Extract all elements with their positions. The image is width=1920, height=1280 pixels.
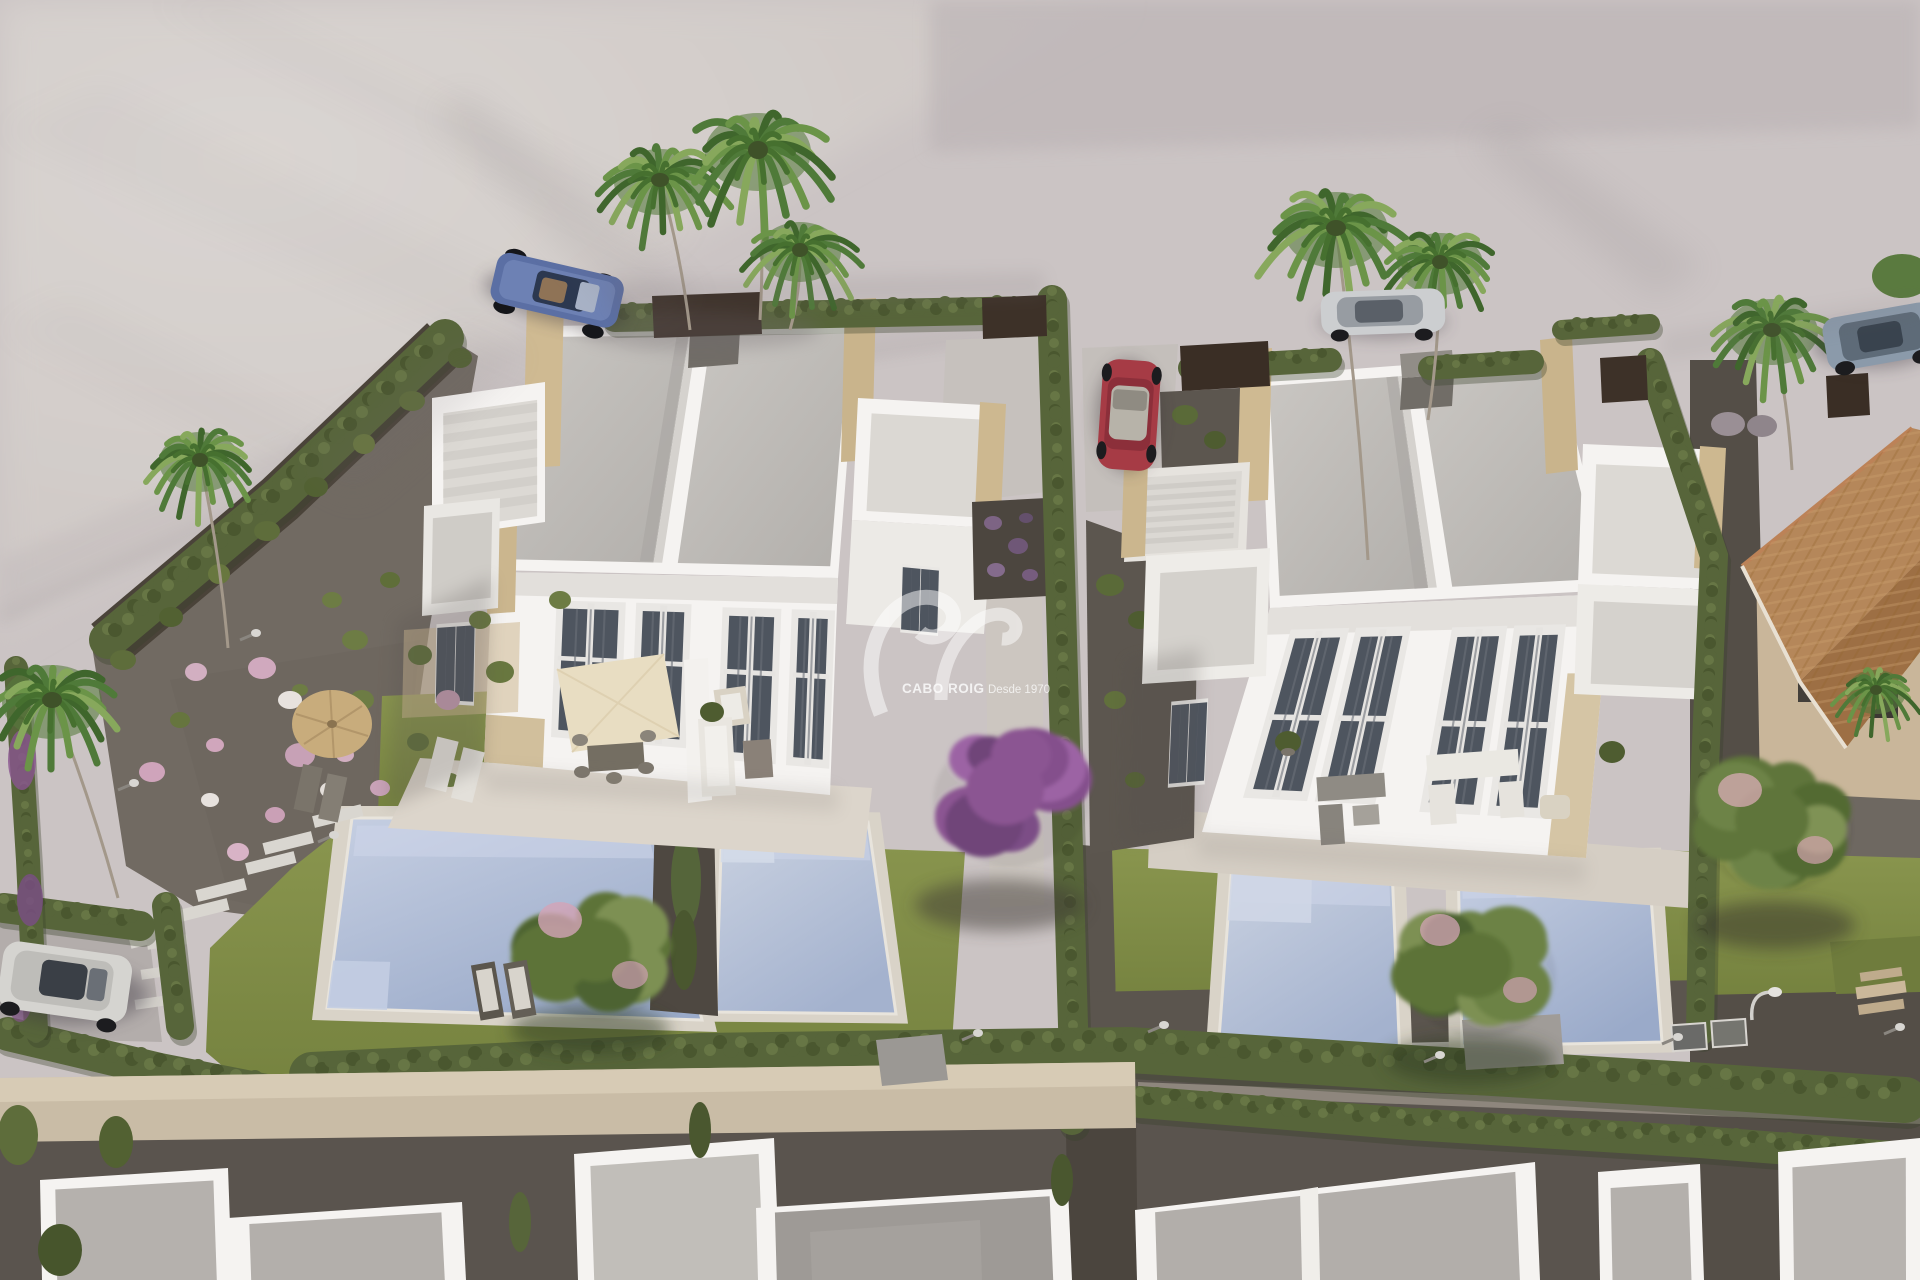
svg-text:Desde 1970: Desde 1970 xyxy=(988,684,1050,696)
svg-text:CABO ROIG: CABO ROIG xyxy=(902,681,985,696)
